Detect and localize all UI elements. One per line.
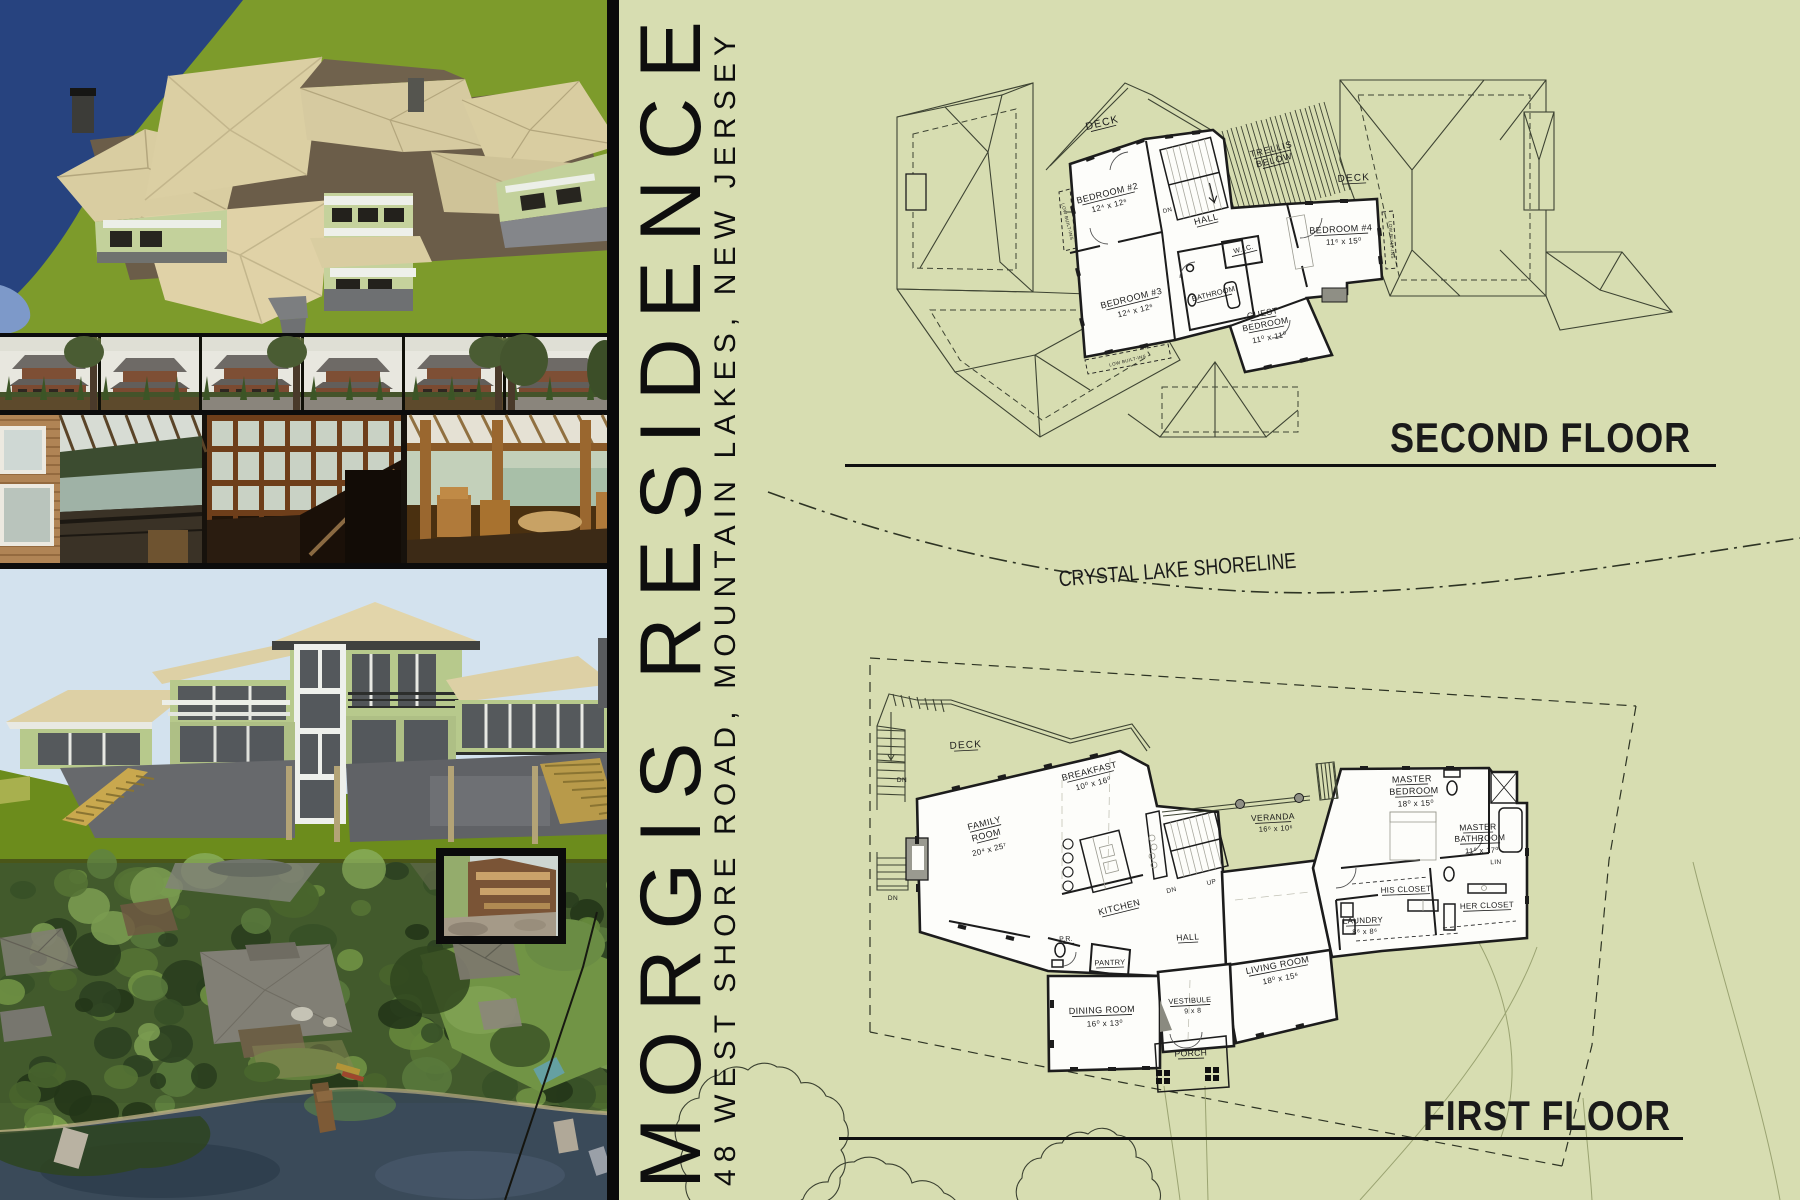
svg-text:9 x 8: 9 x 8: [1184, 1008, 1202, 1016]
svg-text:DN: DN: [888, 895, 898, 902]
svg-text:MASTER: MASTER: [1392, 773, 1432, 784]
svg-text:11⁶ x 15⁰: 11⁶ x 15⁰: [1326, 236, 1362, 247]
svg-text:8⁶ x 8⁶: 8⁶ x 8⁶: [1352, 927, 1378, 937]
svg-text:PORCH: PORCH: [1174, 1047, 1207, 1058]
svg-text:18⁰ x 15⁰: 18⁰ x 15⁰: [1398, 798, 1435, 808]
svg-text:16⁶ x 10⁶: 16⁶ x 10⁶: [1258, 823, 1293, 834]
svg-text:BATHROOM: BATHROOM: [1454, 832, 1505, 844]
svg-text:MASTER: MASTER: [1459, 821, 1497, 832]
svg-text:HIS CLOSET: HIS CLOSET: [1380, 884, 1431, 895]
svg-text:HALL: HALL: [1176, 931, 1200, 942]
svg-text:PANTRY: PANTRY: [1094, 957, 1125, 967]
svg-text:FIRST FLOOR: FIRST FLOOR: [1423, 1092, 1671, 1139]
svg-text:16⁰ x 13⁰: 16⁰ x 13⁰: [1087, 1018, 1124, 1028]
svg-text:LIN: LIN: [1490, 859, 1502, 866]
svg-text:DN: DN: [897, 777, 907, 784]
svg-text:HER CLOSET: HER CLOSET: [1460, 900, 1514, 911]
svg-text:SECOND FLOOR: SECOND FLOOR: [1390, 414, 1691, 461]
svg-text:LAUNDRY: LAUNDRY: [1343, 915, 1384, 925]
svg-text:P.R.: P.R.: [1059, 936, 1073, 943]
svg-text:11⁰ x 17⁰: 11⁰ x 17⁰: [1465, 845, 1499, 855]
svg-text:BEDROOM: BEDROOM: [1389, 785, 1439, 797]
